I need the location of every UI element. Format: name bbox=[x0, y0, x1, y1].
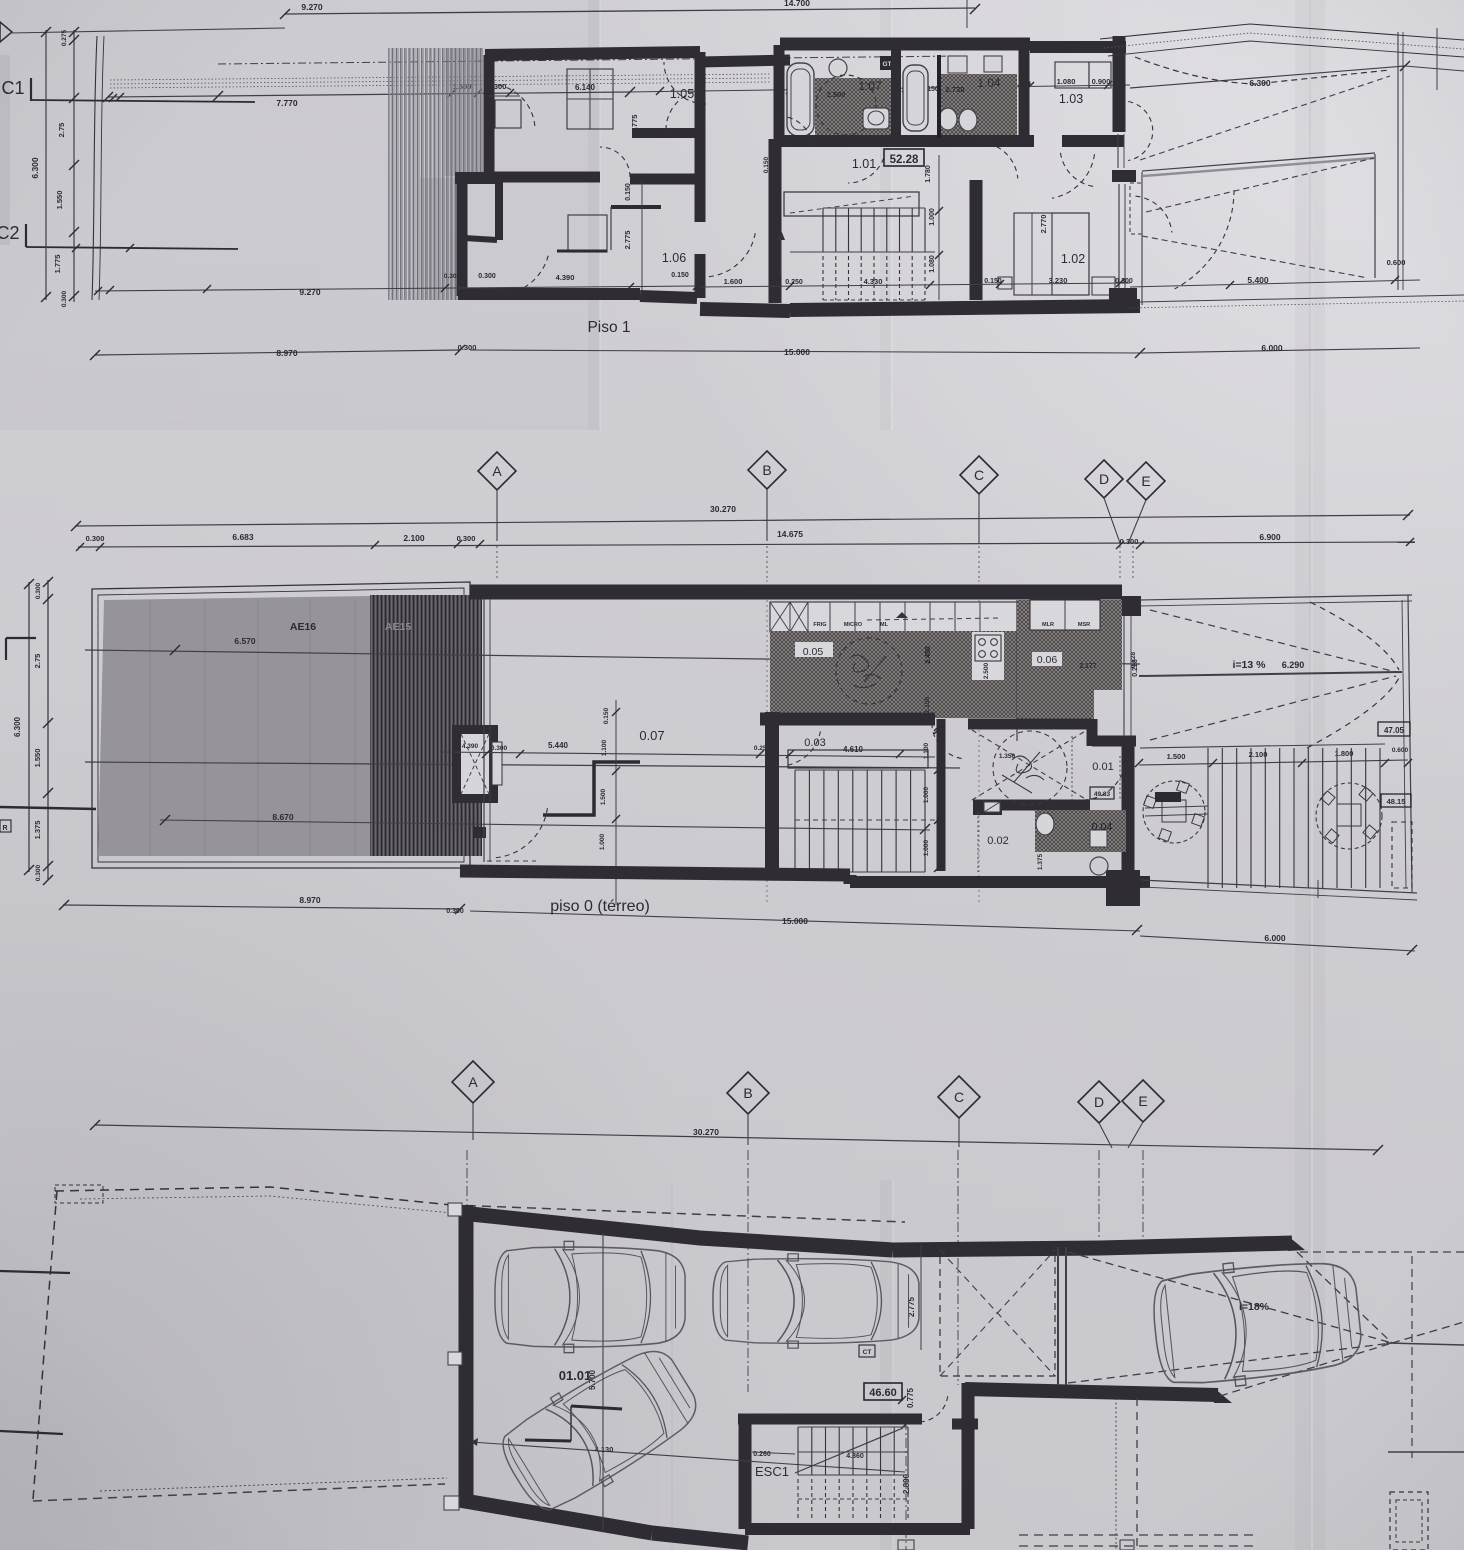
svg-text:1.500: 1.500 bbox=[600, 788, 607, 805]
svg-text:0.275: 0.275 bbox=[61, 29, 68, 46]
svg-text:0.300: 0.300 bbox=[86, 534, 105, 543]
svg-text:1.550: 1.550 bbox=[55, 191, 64, 210]
svg-text:2.890: 2.890 bbox=[902, 1473, 911, 1494]
svg-text:48.15: 48.15 bbox=[1387, 797, 1406, 806]
svg-text:ESC1: ESC1 bbox=[755, 1464, 789, 1479]
svg-text:0.300: 0.300 bbox=[478, 273, 496, 280]
svg-text:2.775: 2.775 bbox=[630, 115, 639, 134]
svg-text:0.300: 0.300 bbox=[458, 343, 477, 352]
svg-text:8.970: 8.970 bbox=[299, 895, 321, 905]
svg-text:46.60: 46.60 bbox=[869, 1387, 897, 1399]
svg-text:E: E bbox=[1141, 473, 1150, 489]
svg-text:1.100: 1.100 bbox=[601, 739, 608, 756]
svg-text:0.07: 0.07 bbox=[639, 728, 664, 743]
svg-text:1.775: 1.775 bbox=[53, 255, 62, 274]
svg-text:30.270: 30.270 bbox=[693, 1127, 719, 1137]
svg-text:0.01: 0.01 bbox=[1092, 761, 1113, 773]
svg-text:1.06: 1.06 bbox=[662, 251, 686, 265]
svg-text:1.03: 1.03 bbox=[1059, 92, 1083, 106]
svg-text:CT: CT bbox=[863, 1349, 872, 1356]
svg-text:2.75: 2.75 bbox=[57, 123, 66, 138]
svg-text:0.300: 0.300 bbox=[457, 534, 476, 543]
svg-text:4.360: 4.360 bbox=[846, 1453, 864, 1460]
svg-text:4.390: 4.390 bbox=[462, 743, 479, 750]
svg-text:01.01: 01.01 bbox=[559, 1368, 592, 1383]
svg-text:8.970: 8.970 bbox=[276, 348, 298, 358]
svg-text:C: C bbox=[954, 1089, 964, 1105]
svg-text:MSR: MSR bbox=[1078, 622, 1090, 628]
svg-text:7.770: 7.770 bbox=[276, 98, 298, 108]
svg-text:0.900: 0.900 bbox=[1092, 77, 1111, 86]
svg-text:1.000: 1.000 bbox=[929, 208, 936, 226]
svg-text:ML: ML bbox=[880, 622, 889, 628]
svg-text:E: E bbox=[1138, 1093, 1147, 1109]
svg-text:1.150: 1.150 bbox=[924, 696, 931, 713]
svg-text:R: R bbox=[2, 825, 7, 832]
svg-text:B: B bbox=[762, 462, 771, 478]
svg-text:6.300: 6.300 bbox=[1249, 78, 1271, 88]
svg-text:1.600: 1.600 bbox=[724, 277, 743, 286]
svg-text:15.000: 15.000 bbox=[782, 916, 808, 926]
svg-text:0.250: 0.250 bbox=[785, 279, 803, 286]
svg-text:1.500: 1.500 bbox=[1167, 752, 1186, 761]
svg-text:1.375: 1.375 bbox=[33, 821, 42, 840]
svg-text:1.000: 1.000 bbox=[923, 839, 930, 856]
svg-text:i=13 %: i=13 % bbox=[1233, 659, 1267, 671]
svg-text:30.270: 30.270 bbox=[710, 504, 736, 514]
svg-text:AE15: AE15 bbox=[385, 621, 411, 633]
svg-text:i=18%: i=18% bbox=[1239, 1301, 1270, 1313]
svg-text:0.300: 0.300 bbox=[35, 864, 42, 881]
svg-text:1.780: 1.780 bbox=[925, 165, 932, 183]
svg-text:0.150: 0.150 bbox=[984, 278, 1002, 285]
svg-text:6.290: 6.290 bbox=[1282, 660, 1305, 670]
svg-text:2.450: 2.450 bbox=[925, 646, 932, 664]
svg-text:0.04: 0.04 bbox=[1092, 821, 1113, 833]
svg-text:0.300: 0.300 bbox=[1120, 537, 1139, 546]
svg-text:0.03: 0.03 bbox=[804, 737, 825, 749]
svg-text:2.730: 2.730 bbox=[946, 85, 965, 94]
svg-text:0.300: 0.300 bbox=[35, 582, 42, 599]
svg-text:6.000: 6.000 bbox=[1264, 933, 1286, 943]
svg-text:1.100: 1.100 bbox=[923, 742, 930, 759]
svg-text:2.500: 2.500 bbox=[983, 662, 990, 679]
svg-text:6.000: 6.000 bbox=[1261, 343, 1283, 353]
svg-text:C2: C2 bbox=[0, 223, 20, 243]
svg-text:47.05: 47.05 bbox=[1384, 726, 1405, 735]
svg-text:3.230: 3.230 bbox=[1049, 276, 1068, 285]
svg-text:14.700: 14.700 bbox=[784, 0, 810, 8]
svg-text:1.080: 1.080 bbox=[1057, 77, 1076, 86]
svg-text:A: A bbox=[468, 1074, 478, 1090]
svg-text:C: C bbox=[974, 467, 984, 483]
svg-text:52.28: 52.28 bbox=[890, 154, 919, 166]
svg-text:FRIG: FRIG bbox=[813, 622, 826, 628]
svg-text:2.75: 2.75 bbox=[33, 654, 42, 669]
svg-text:Piso 1: Piso 1 bbox=[587, 319, 630, 336]
svg-text:9.270: 9.270 bbox=[301, 2, 323, 12]
svg-text:0.150: 0.150 bbox=[763, 156, 770, 173]
svg-text:6.570: 6.570 bbox=[234, 636, 256, 646]
svg-text:A: A bbox=[492, 463, 502, 479]
svg-text:5.440: 5.440 bbox=[548, 741, 569, 750]
svg-text:0.02: 0.02 bbox=[987, 835, 1008, 847]
svg-text:6.900: 6.900 bbox=[1259, 532, 1281, 542]
svg-text:0.150: 0.150 bbox=[603, 707, 610, 724]
svg-text:1.000: 1.000 bbox=[923, 786, 930, 803]
svg-text:15.000: 15.000 bbox=[784, 347, 810, 357]
svg-text:6.300: 6.300 bbox=[30, 157, 40, 179]
svg-text:14.675: 14.675 bbox=[777, 529, 803, 539]
svg-text:2.770: 2.770 bbox=[1039, 215, 1048, 234]
svg-text:6.300: 6.300 bbox=[13, 716, 22, 737]
svg-text:0.300: 0.300 bbox=[446, 908, 464, 915]
svg-text:0.150: 0.150 bbox=[625, 183, 632, 201]
svg-text:MICRO: MICRO bbox=[844, 622, 863, 628]
svg-text:1.550: 1.550 bbox=[33, 749, 42, 768]
svg-text:0.228: 0.228 bbox=[1132, 659, 1139, 677]
svg-text:2.100: 2.100 bbox=[403, 533, 425, 543]
svg-text:0.150: 0.150 bbox=[671, 272, 689, 279]
svg-text:AE16: AE16 bbox=[290, 621, 316, 633]
svg-text:9.270: 9.270 bbox=[299, 287, 321, 297]
svg-text:piso 0 (térreo): piso 0 (térreo) bbox=[550, 898, 650, 915]
svg-text:4.330: 4.330 bbox=[864, 277, 883, 286]
svg-text:0.300: 0.300 bbox=[61, 290, 68, 307]
svg-text:D: D bbox=[1094, 1094, 1104, 1110]
svg-text:0.300: 0.300 bbox=[444, 273, 461, 280]
svg-text:49.83: 49.83 bbox=[1094, 791, 1111, 798]
svg-text:GT: GT bbox=[882, 61, 891, 68]
svg-text:1.02: 1.02 bbox=[1061, 252, 1085, 266]
svg-text:1.080: 1.080 bbox=[929, 255, 936, 273]
svg-text:0.05: 0.05 bbox=[803, 646, 824, 658]
svg-text:1.07: 1.07 bbox=[858, 79, 882, 93]
svg-text:0.06: 0.06 bbox=[1037, 654, 1058, 666]
svg-text:D: D bbox=[1099, 471, 1109, 487]
svg-text:4.390: 4.390 bbox=[556, 273, 575, 282]
svg-text:0.300: 0.300 bbox=[1115, 278, 1133, 285]
svg-text:0.300: 0.300 bbox=[491, 745, 508, 752]
svg-text:6.140: 6.140 bbox=[575, 83, 596, 92]
svg-text:0.775: 0.775 bbox=[906, 1387, 915, 1408]
svg-text:1.01: 1.01 bbox=[852, 157, 876, 171]
svg-text:MLR: MLR bbox=[1042, 622, 1054, 628]
svg-text:C1: C1 bbox=[1, 78, 24, 98]
svg-text:2.177: 2.177 bbox=[1079, 663, 1097, 670]
svg-text:6.683: 6.683 bbox=[232, 532, 254, 542]
svg-text:0.600: 0.600 bbox=[1387, 258, 1406, 267]
svg-text:1.000: 1.000 bbox=[599, 833, 606, 850]
svg-text:B: B bbox=[743, 1085, 752, 1101]
svg-text:0.600: 0.600 bbox=[1392, 747, 1409, 754]
svg-text:8.670: 8.670 bbox=[272, 812, 294, 822]
svg-text:2.500: 2.500 bbox=[827, 90, 846, 99]
svg-text:2.775: 2.775 bbox=[623, 231, 632, 250]
svg-text:1.04: 1.04 bbox=[977, 76, 1001, 90]
svg-text:1.350: 1.350 bbox=[999, 753, 1016, 760]
svg-text:1.375: 1.375 bbox=[1037, 853, 1044, 870]
